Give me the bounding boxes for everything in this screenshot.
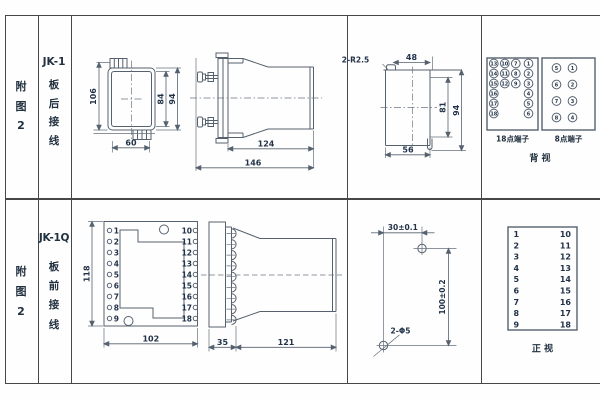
svg-text:7: 7 (555, 99, 559, 105)
figure-label-char: 附 (5, 77, 37, 97)
wiring-label-char: 板 (38, 258, 71, 277)
svg-text:13: 13 (560, 264, 571, 273)
svg-text:8: 8 (555, 115, 559, 121)
svg-text:1: 1 (571, 66, 575, 72)
terminal-point: 9 (511, 79, 520, 88)
dim-35: 35 (217, 338, 229, 347)
dim-146-group: 146 (196, 158, 314, 168)
svg-text:11: 11 (182, 237, 192, 246)
terminal-point: 2 (568, 80, 577, 89)
figure-label-row1: 附 图 2 (5, 77, 37, 136)
terminal-point: 2 (524, 69, 533, 78)
dim-30: 30±0.1 (388, 223, 418, 232)
dim-106-group: 106 (89, 63, 155, 134)
jk1-side-view-drawing: 124 146 (190, 53, 322, 171)
svg-text:2: 2 (114, 237, 119, 246)
svg-text:9: 9 (514, 320, 520, 329)
terminal-point: 7 (552, 97, 561, 106)
svg-text:16: 16 (182, 292, 192, 301)
drill-plan-drawing: 30±0.1 2-Φ5 100±0.2 (347, 199, 481, 383)
jk1q-front-view-drawing: 1 2 3 4 5 6 7 8 9 10 11 12 13 14 15 16 1… (82, 222, 197, 348)
dim-56: 56 (402, 145, 414, 154)
dim-81-group: 81 (438, 78, 448, 138)
terminal-8pt-rear-view: 5 6 7 8 1 2 3 4 8点端子 (542, 58, 595, 144)
dim-102: 102 (142, 334, 159, 343)
svg-text:3: 3 (571, 99, 575, 105)
svg-text:9: 9 (114, 314, 119, 323)
terminal-point: 3 (524, 79, 533, 88)
mounting-hole-bottom (377, 341, 457, 349)
svg-text:15: 15 (490, 81, 497, 87)
terminal-point: 7 (511, 59, 520, 68)
dim-48-group: 48 (394, 53, 431, 63)
dim-118-group: 118 (82, 222, 103, 327)
dim-81: 81 (438, 101, 447, 113)
model-label-jk1q: JK-1Q (36, 232, 72, 244)
terminal-point: 6 (552, 80, 561, 89)
drawing-sheet: 附 图 2 JK-1 板 后 接 线 附 图 2 JK-1Q 板 前 接 线 (0, 0, 600, 400)
svg-text:4: 4 (571, 115, 575, 121)
mounting-hole-top (160, 225, 169, 234)
svg-text:2: 2 (514, 241, 520, 250)
jk1-case-views: 106 84 94 60 (71, 15, 347, 199)
svg-text:5: 5 (555, 66, 559, 72)
svg-text:6: 6 (527, 111, 531, 117)
table-left-column: 1 2 3 4 5 6 7 8 9 (514, 230, 520, 329)
case-taper (233, 228, 260, 321)
terminal-point: 3 (568, 97, 577, 106)
svg-text:8: 8 (514, 309, 520, 318)
terminal-point: 10 (500, 59, 509, 68)
model-label-jk1: JK-1 (38, 56, 71, 68)
dim-146: 146 (245, 158, 262, 167)
terminal-point: 5 (524, 99, 533, 108)
centerline (381, 67, 438, 150)
dim-118: 118 (82, 265, 91, 282)
label-18pt-terminal: 18点端子 (496, 134, 529, 144)
terminal-point: 5 (552, 64, 561, 73)
svg-text:7: 7 (514, 298, 520, 307)
right-terminal-column: 10 11 12 13 14 15 16 17 18 (182, 226, 198, 323)
terminal-point: 4 (568, 113, 577, 122)
svg-text:5: 5 (527, 101, 531, 107)
svg-text:5: 5 (114, 270, 119, 279)
dim-84: 84 (156, 93, 165, 105)
svg-text:10: 10 (560, 230, 572, 239)
terminal-comb-top (110, 59, 127, 69)
figure-label-char: 图 (5, 282, 37, 302)
dim-60-group: 60 (113, 138, 150, 152)
dim-94: 94 (168, 93, 177, 105)
svg-text:13: 13 (182, 259, 192, 268)
table-right-column: 10 11 12 13 14 15 16 17 18 (560, 230, 572, 329)
svg-text:6: 6 (514, 287, 520, 296)
connector-outline (120, 230, 184, 318)
svg-text:3: 3 (527, 81, 531, 87)
svg-text:14: 14 (182, 270, 192, 279)
terminal-point: 4 (524, 89, 533, 98)
svg-text:1: 1 (527, 61, 531, 67)
dim-94-group: 94 (452, 70, 462, 151)
terminal-point: 1 (568, 64, 577, 73)
terminal-point: 17 (489, 99, 498, 108)
svg-text:2: 2 (527, 71, 531, 77)
cutout-outline (384, 57, 467, 151)
svg-text:12: 12 (182, 248, 192, 257)
svg-text:5: 5 (514, 275, 520, 284)
jk1-front-view-drawing: 106 84 94 60 (89, 59, 181, 153)
front-view-label: 正 视 (532, 343, 553, 355)
svg-text:17: 17 (182, 303, 192, 312)
mounting-hole-top (414, 242, 457, 255)
svg-text:4: 4 (514, 264, 520, 273)
terminal-screw-top (198, 72, 219, 82)
svg-text:10: 10 (501, 61, 508, 67)
svg-text:6: 6 (114, 281, 119, 290)
wiring-label-row2: 板 前 接 线 (38, 258, 71, 335)
svg-text:15: 15 (182, 281, 192, 290)
terminal-point: 8 (511, 69, 520, 78)
dim-102-group: 102 (104, 328, 198, 348)
svg-text:8: 8 (514, 71, 518, 77)
figure-label-char: 2 (5, 116, 37, 136)
wiring-label-char: 后 (38, 95, 71, 114)
jk1q-case-views: 1 2 3 4 5 6 7 8 9 10 11 12 13 14 15 16 1… (71, 199, 347, 383)
terminal-point: 13 (489, 59, 498, 68)
terminal-point: 8 (552, 113, 561, 122)
svg-text:4: 4 (527, 91, 531, 97)
label-8pt-terminal: 8点端子 (555, 134, 583, 144)
svg-text:16: 16 (560, 298, 572, 307)
radius-callout: 2-R2.5 (342, 56, 388, 70)
label-2-phi5: 2-Φ5 (391, 327, 411, 336)
dim-124: 124 (258, 139, 275, 148)
svg-text:7: 7 (114, 292, 119, 301)
dim-121-group: 121 (236, 314, 336, 352)
figure-label-char: 图 (5, 97, 37, 117)
svg-text:11: 11 (501, 71, 508, 77)
wiring-label-char: 板 (38, 76, 71, 95)
svg-text:13: 13 (490, 61, 497, 67)
svg-text:12: 12 (501, 81, 508, 87)
front-plate (209, 222, 226, 327)
dim-35-group: 35 (209, 326, 236, 352)
left-terminal-column: 1 2 3 4 5 6 7 8 9 (107, 226, 119, 323)
dim-60: 60 (125, 138, 137, 147)
terminal-point: 15 (489, 79, 498, 88)
svg-text:10: 10 (182, 226, 192, 235)
dim-124-group: 124 (228, 131, 314, 169)
svg-text:14: 14 (490, 71, 497, 77)
wiring-label-char: 线 (38, 132, 71, 151)
svg-text:18: 18 (182, 314, 192, 323)
svg-text:18: 18 (490, 111, 497, 117)
terminal-screw-bottom (198, 117, 219, 127)
terminal-point: 11 (500, 69, 509, 78)
svg-text:3: 3 (514, 253, 520, 262)
dim-106: 106 (89, 88, 98, 105)
wiring-label-char: 接 (38, 113, 71, 132)
terminal-point: 12 (500, 79, 509, 88)
terminal-point: 18 (489, 109, 498, 118)
mounting-hole-bottom (124, 317, 133, 326)
figure-label-char: 2 (5, 302, 37, 322)
wiring-label-char: 接 (38, 296, 71, 315)
svg-text:16: 16 (490, 91, 497, 97)
svg-text:6: 6 (555, 82, 559, 88)
svg-text:7: 7 (514, 61, 518, 67)
panel-cutout-drawing: 2-R2.5 48 81 94 56 (347, 15, 481, 199)
svg-text:15: 15 (560, 287, 572, 296)
figure-label-char: 附 (5, 262, 37, 282)
terminal-table-front-view: 1 2 3 4 5 6 7 8 9 10 11 12 13 14 15 16 1… (481, 199, 600, 383)
terminal-rear-views: 13 14 15 16 17 18 10 11 12 7 8 9 1 2 3 4… (481, 15, 600, 199)
terminal-point: 1 (524, 59, 533, 68)
terminal-slots (227, 234, 236, 320)
dim-56-group: 56 (386, 145, 431, 158)
svg-text:17: 17 (490, 101, 497, 107)
svg-text:8: 8 (114, 303, 119, 312)
centerline (121, 61, 142, 141)
svg-text:3: 3 (114, 248, 119, 257)
jk1q-side-view-drawing: 35 121 (201, 222, 342, 352)
terminal-point: 6 (524, 109, 533, 118)
svg-text:17: 17 (560, 309, 571, 318)
svg-text:4: 4 (114, 259, 119, 268)
svg-text:9: 9 (514, 81, 518, 87)
svg-text:11: 11 (560, 241, 572, 250)
grid-vertical-1 (5, 15, 6, 384)
wiring-label-row1: 板 后 接 线 (38, 76, 71, 150)
terminal-18pt-rear-view: 13 14 15 16 17 18 10 11 12 7 8 9 1 2 3 4… (487, 58, 538, 144)
svg-text:12: 12 (560, 253, 571, 262)
terminal-point: 14 (489, 69, 498, 78)
dim-30-group: 30±0.1 (371, 223, 435, 233)
svg-text:18: 18 (560, 320, 572, 329)
svg-text:14: 14 (560, 275, 572, 284)
svg-text:2: 2 (571, 82, 575, 88)
dim-121: 121 (278, 338, 295, 347)
rear-view-label: 背 视 (529, 152, 550, 164)
wiring-label-char: 线 (38, 316, 71, 335)
svg-text:1: 1 (514, 230, 520, 239)
wiring-label-char: 前 (38, 277, 71, 296)
svg-text:1: 1 (114, 226, 119, 235)
label-2-r2.5: 2-R2.5 (342, 56, 369, 65)
terminal-strip (226, 227, 232, 322)
dim-48: 48 (406, 53, 418, 62)
terminal-point: 16 (489, 89, 498, 98)
dim-94: 94 (452, 104, 461, 116)
dim-100-group: 100±0.2 (438, 249, 449, 346)
figure-label-row2: 附 图 2 (5, 262, 37, 322)
dim-100: 100±0.2 (438, 279, 447, 314)
hole-callout: 2-Φ5 (374, 327, 411, 357)
